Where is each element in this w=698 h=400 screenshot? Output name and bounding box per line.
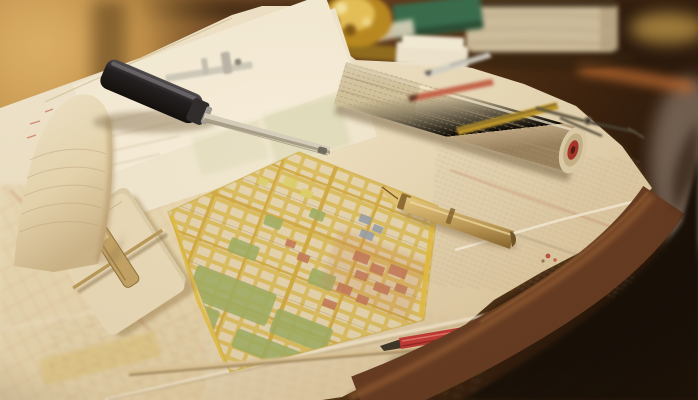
photo-canvas: [0, 0, 698, 400]
warm-cast-overlay: [0, 0, 698, 400]
